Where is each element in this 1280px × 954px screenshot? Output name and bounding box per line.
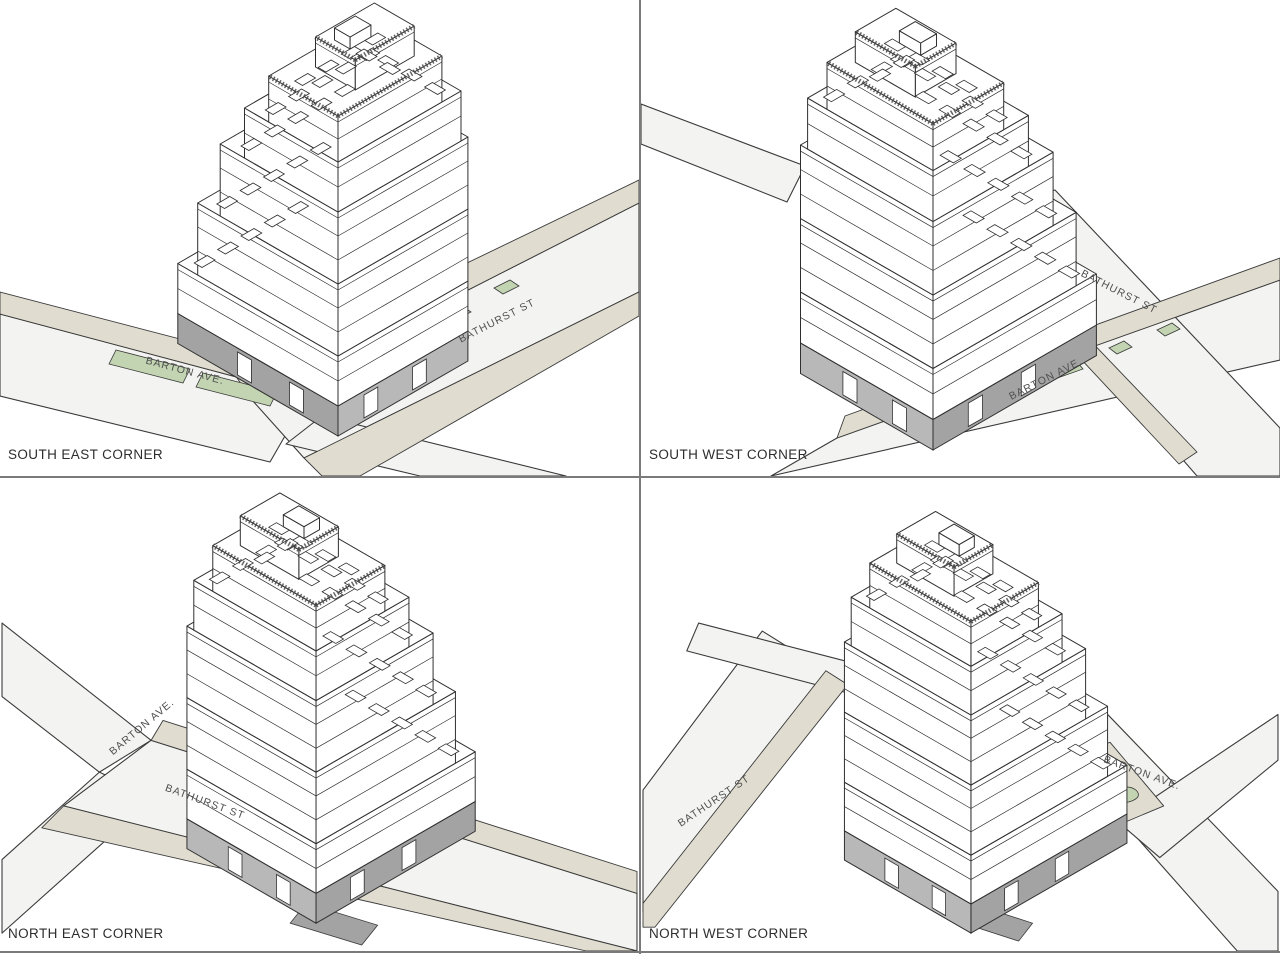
corner-label: NORTH WEST CORNER (649, 926, 808, 941)
axonometric-drawing-north-west (641, 478, 1280, 951)
axonometric-drawing-south-west (641, 0, 1280, 476)
panel-north-east-corner: BARTON AVE. BATHURST ST NORTH EAST CORNE… (0, 478, 639, 951)
corner-label: SOUTH EAST CORNER (8, 447, 163, 462)
panel-south-west-corner: BATHURST ST BARTON AVE. SOUTH WEST CORNE… (641, 0, 1280, 476)
panel-divider-horizontal (0, 476, 1280, 478)
corner-label: NORTH EAST CORNER (8, 926, 164, 941)
axonometric-drawing-south-east (0, 0, 639, 476)
corner-label: SOUTH WEST CORNER (649, 447, 808, 462)
building-axon (844, 511, 1127, 933)
panel-north-west-corner: BATHURST ST BARTON AVE. NORTH WEST CORNE… (641, 478, 1280, 951)
axonometric-drawing-north-east (0, 478, 639, 951)
sheet-bottom-rule (0, 951, 1280, 953)
drawing-sheet: BARTON AVE. BATHURST ST SOUTH EAST CORNE… (0, 0, 1280, 954)
panel-south-east-corner: BARTON AVE. BATHURST ST SOUTH EAST CORNE… (0, 0, 639, 476)
